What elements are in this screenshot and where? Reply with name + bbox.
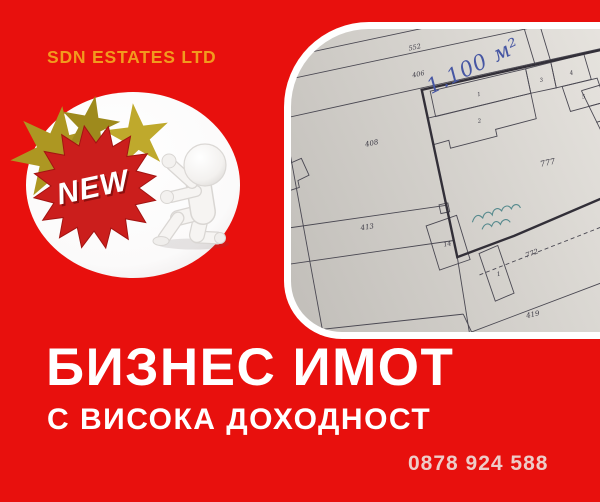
cadastral-plan: 1.100 м² 552 406 408 413 777 14 772 419 … xyxy=(291,29,600,332)
parcel-label: 772 xyxy=(524,247,540,259)
parcel-label: 777 xyxy=(539,157,557,169)
lot-number: 1 xyxy=(477,92,482,99)
subheadline: С ВИСОКА ДОХОДНОСТ xyxy=(47,405,431,435)
headline: БИЗНЕС ИМОТ xyxy=(46,341,454,394)
ad-canvas: SDN ESTATES LTD NEW NEW xyxy=(0,0,600,502)
handwritten-area-note: 1.100 м² xyxy=(423,33,524,99)
parcel-label: 1 xyxy=(496,271,501,279)
lot-number: 2 xyxy=(476,118,482,125)
lot-number: 4 xyxy=(568,70,574,77)
new-badge: NEW NEW xyxy=(8,86,258,291)
phone-number: 0878 924 588 xyxy=(408,452,548,476)
lot-number: 5 xyxy=(582,94,587,101)
lot-number: 3 xyxy=(539,77,544,84)
pen-scribble xyxy=(471,203,524,231)
map-photo: 1.100 м² 552 406 408 413 777 14 772 419 … xyxy=(284,22,600,339)
brand-text: SDN ESTATES LTD xyxy=(47,47,217,68)
parcel-label: 408 xyxy=(363,138,379,149)
parcel-label: 14 xyxy=(442,239,452,249)
parcel-label: 413 xyxy=(359,222,375,232)
parcel-label: 419 xyxy=(525,309,541,320)
